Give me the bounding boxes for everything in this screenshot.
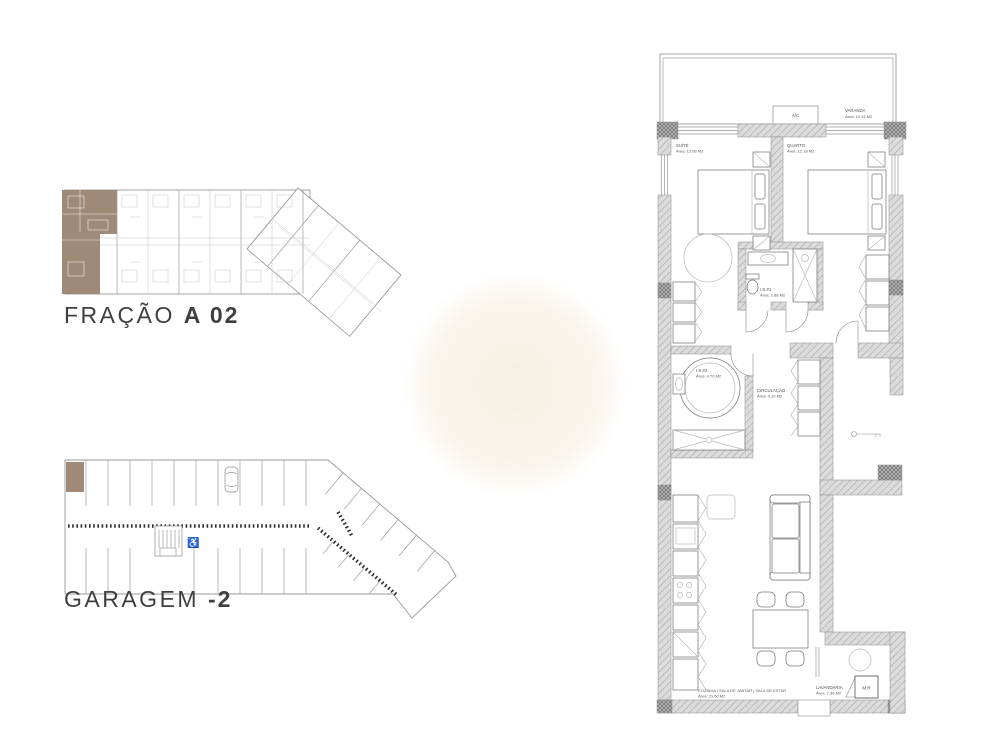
quarto-name: QUARTO bbox=[787, 143, 806, 148]
room-cozinha-sala: COZINHA | SALA DE JANTAR | SALA DE ESTAR… bbox=[673, 495, 810, 699]
is1-toilet bbox=[746, 274, 759, 294]
cozinha-name: COZINHA | SALA DE JANTAR | SALA DE ESTAR bbox=[698, 688, 786, 693]
circulacao-name: CIRCULAÇÃO bbox=[757, 388, 786, 393]
handicap-icon: ♿ bbox=[187, 536, 199, 549]
room-quarto: QUARTO Área: 12.18 M2 bbox=[787, 143, 889, 331]
pillar-top-left bbox=[657, 122, 678, 139]
kitchen-counter bbox=[673, 495, 706, 690]
is1-name: I.S.#1 bbox=[760, 287, 772, 292]
circulacao-area: Área: 4.10 M2 bbox=[757, 394, 783, 399]
is2-tub bbox=[680, 358, 740, 418]
pillar-top-right bbox=[884, 122, 906, 139]
is2-area: Área: 4.70 M2 bbox=[696, 374, 722, 379]
is1-sink bbox=[748, 252, 788, 265]
laundry-threshold bbox=[816, 647, 819, 677]
fracao-key-plan bbox=[60, 182, 432, 358]
room-suite: SUÍTE Área: 12.06 M2 bbox=[673, 143, 770, 343]
is2-sink bbox=[673, 374, 685, 394]
pillar-entry bbox=[878, 465, 902, 480]
stair-core bbox=[155, 526, 182, 556]
fracao-title-bold: A 02 bbox=[184, 302, 240, 328]
pillar-left-2 bbox=[658, 485, 671, 500]
garagem-title: GARAGEM -2 bbox=[64, 586, 232, 613]
lavandaria-area: Área: 2.36 M2 bbox=[816, 691, 842, 696]
pillar-right-1 bbox=[889, 280, 903, 295]
room-lavandaria: M.R LAVANDARIA Área: 2.36 M2 bbox=[816, 647, 878, 698]
cozinha-area: Área: 21.50 M2 bbox=[698, 694, 726, 699]
is2-name: I.S.#2 bbox=[696, 368, 708, 373]
apartment-plan: VARANDA Área: 10.31 M2 A/C bbox=[640, 40, 920, 720]
is1-doors bbox=[746, 310, 808, 332]
ac-label: A/C bbox=[792, 113, 799, 118]
suite-bed bbox=[698, 170, 769, 234]
dining-table bbox=[753, 592, 808, 666]
pillar-left-1 bbox=[658, 283, 671, 298]
room-is2: I.S.#2 Área: 4.70 M2 bbox=[673, 354, 753, 450]
is1-shower bbox=[793, 249, 817, 302]
ac-unit: A/C bbox=[773, 106, 818, 124]
circulacao-wardrobe bbox=[791, 360, 820, 436]
room-is1: I.S.#1 Área: 2.88 M2 bbox=[746, 249, 817, 332]
fracao-title: FRAÇÃO A 02 bbox=[64, 302, 239, 329]
room-circulacao: CIRCULAÇÃO Área: 4.10 M2 bbox=[757, 321, 880, 437]
varanda-area: Área: 10.31 M2 bbox=[845, 114, 873, 119]
is2-shower-tray bbox=[673, 430, 745, 450]
quarto-area: Área: 12.18 M2 bbox=[787, 149, 815, 154]
lavandaria-name: LAVANDARIA bbox=[816, 685, 843, 690]
quarto-door bbox=[836, 321, 858, 343]
suite-area: Área: 12.06 M2 bbox=[676, 149, 704, 154]
suite-rug bbox=[684, 234, 732, 282]
mr-box: M.R bbox=[846, 676, 878, 698]
entrance-step bbox=[798, 700, 830, 716]
garagem-title-bold: -2 bbox=[208, 586, 232, 612]
mr-label: M.R bbox=[862, 686, 871, 691]
suite-name: SUÍTE bbox=[676, 143, 689, 148]
quarto-wardrobe bbox=[859, 255, 889, 331]
entry-key-icon bbox=[852, 432, 881, 438]
is1-area: Área: 2.88 M2 bbox=[760, 293, 786, 298]
kitchen-island bbox=[707, 495, 735, 519]
fracao-title-regular: FRAÇÃO bbox=[64, 302, 175, 328]
varanda-name: VARANDA bbox=[845, 108, 866, 113]
garagem-title-regular: GARAGEM bbox=[64, 586, 199, 612]
highlighted-parking-spot bbox=[66, 462, 84, 492]
sofa bbox=[770, 495, 810, 580]
washing-machine bbox=[849, 649, 871, 671]
quarto-bed bbox=[808, 170, 886, 234]
suite-wardrobe bbox=[673, 282, 702, 343]
